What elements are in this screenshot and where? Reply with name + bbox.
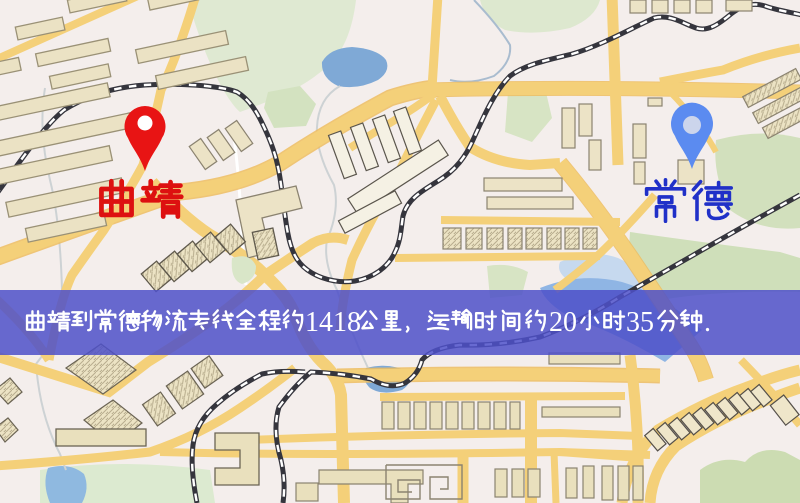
svg-text:20: 20 [549,307,577,338]
svg-text:.: . [704,307,711,338]
svg-text:1418: 1418 [305,307,361,338]
svg-text:35: 35 [626,307,654,338]
